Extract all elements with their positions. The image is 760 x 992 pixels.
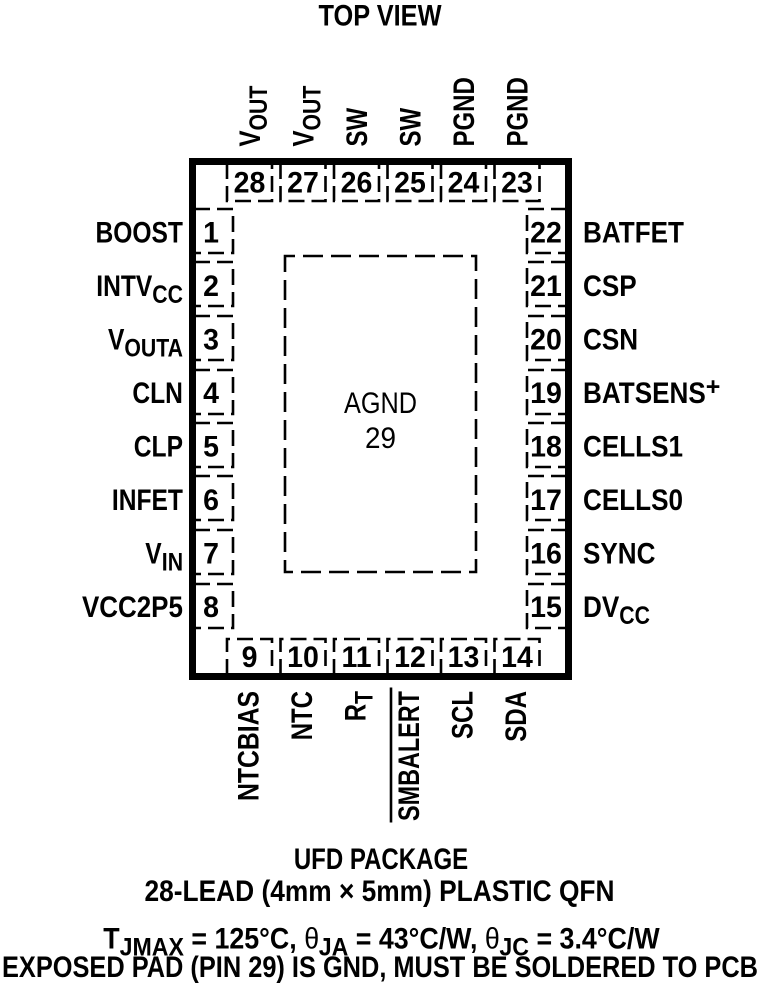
svg-text:PGND: PGND (446, 77, 480, 146)
svg-text:T: T (350, 691, 378, 704)
svg-text:21: 21 (530, 270, 562, 303)
svg-text:20: 20 (530, 324, 562, 357)
svg-text:DV: DV (583, 590, 619, 623)
svg-text:17: 17 (530, 484, 562, 517)
svg-text:OUT: OUT (298, 86, 326, 131)
svg-text:INFET: INFET (112, 483, 183, 517)
svg-text:16: 16 (530, 538, 562, 571)
svg-text:26: 26 (341, 167, 373, 200)
svg-text:BATFET: BATFET (583, 216, 684, 249)
svg-text:3: 3 (203, 324, 219, 357)
svg-text:18: 18 (530, 431, 562, 464)
svg-text:CELLS0: CELLS0 (583, 483, 683, 516)
svg-text:UFD PACKAGE: UFD PACKAGE (294, 843, 468, 876)
svg-text:V: V (145, 536, 162, 570)
svg-text:NTCBIAS: NTCBIAS (231, 691, 265, 801)
svg-text:9: 9 (242, 641, 258, 674)
svg-text:BOOST: BOOST (96, 215, 184, 249)
svg-text:EXPOSED PAD (PIN 29) IS GND, M: EXPOSED PAD (PIN 29) IS GND, MUST BE SOL… (2, 951, 758, 984)
svg-text:IN: IN (162, 548, 183, 576)
svg-text:CSN: CSN (583, 323, 638, 356)
svg-text:25: 25 (394, 167, 426, 200)
svg-text:NTC: NTC (284, 691, 318, 740)
svg-text:BATSENS: BATSENS (583, 376, 706, 409)
svg-text:PGND: PGND (500, 77, 534, 146)
svg-text:CSP: CSP (583, 269, 637, 302)
svg-text:CLP: CLP (134, 429, 183, 463)
svg-text:5: 5 (203, 431, 219, 464)
svg-text:R: R (338, 704, 372, 722)
svg-text:CC: CC (152, 280, 183, 308)
svg-text:24: 24 (448, 167, 480, 200)
svg-text:11: 11 (341, 641, 371, 674)
svg-text:7: 7 (203, 538, 219, 571)
svg-text:14: 14 (501, 641, 533, 674)
svg-text:V: V (108, 322, 125, 356)
svg-text:15: 15 (530, 591, 562, 624)
svg-text:4: 4 (203, 377, 220, 410)
svg-text:+: + (706, 373, 721, 401)
svg-text:VCC2P5: VCC2P5 (82, 590, 183, 623)
svg-text:OUTA: OUTA (124, 334, 183, 362)
svg-text:AGND: AGND (344, 387, 417, 420)
svg-text:8: 8 (203, 591, 219, 624)
svg-text:SDA: SDA (498, 691, 532, 742)
svg-text:TOP VIEW: TOP VIEW (319, 0, 443, 33)
svg-text:28: 28 (234, 167, 266, 200)
svg-text:V: V (232, 130, 266, 146)
svg-text:CELLS1: CELLS1 (583, 430, 683, 463)
svg-text:SMBALERT: SMBALERT (392, 691, 425, 821)
svg-text:SYNC: SYNC (583, 537, 656, 570)
svg-text:22: 22 (530, 217, 562, 250)
svg-text:SW: SW (393, 108, 427, 147)
svg-text:2: 2 (203, 270, 219, 303)
svg-text:27: 27 (287, 167, 319, 200)
svg-text:CC: CC (619, 601, 650, 629)
svg-text:SCL: SCL (445, 691, 479, 739)
svg-text:6: 6 (203, 484, 219, 517)
svg-text:1: 1 (203, 217, 219, 250)
svg-text:SW: SW (339, 108, 373, 147)
svg-text:19: 19 (530, 377, 562, 410)
svg-text:INTV: INTV (96, 269, 153, 303)
svg-text:CLN: CLN (132, 376, 183, 410)
svg-text:28-LEAD (4mm × 5mm) PLASTIC QF: 28-LEAD (4mm × 5mm) PLASTIC QFN (145, 875, 615, 908)
svg-text:V: V (286, 130, 320, 146)
svg-text:10: 10 (287, 641, 319, 674)
svg-text:OUT: OUT (244, 86, 272, 131)
svg-text:12: 12 (394, 641, 426, 674)
svg-text:13: 13 (448, 641, 480, 674)
svg-text:29: 29 (365, 422, 396, 455)
svg-text:23: 23 (501, 167, 533, 200)
